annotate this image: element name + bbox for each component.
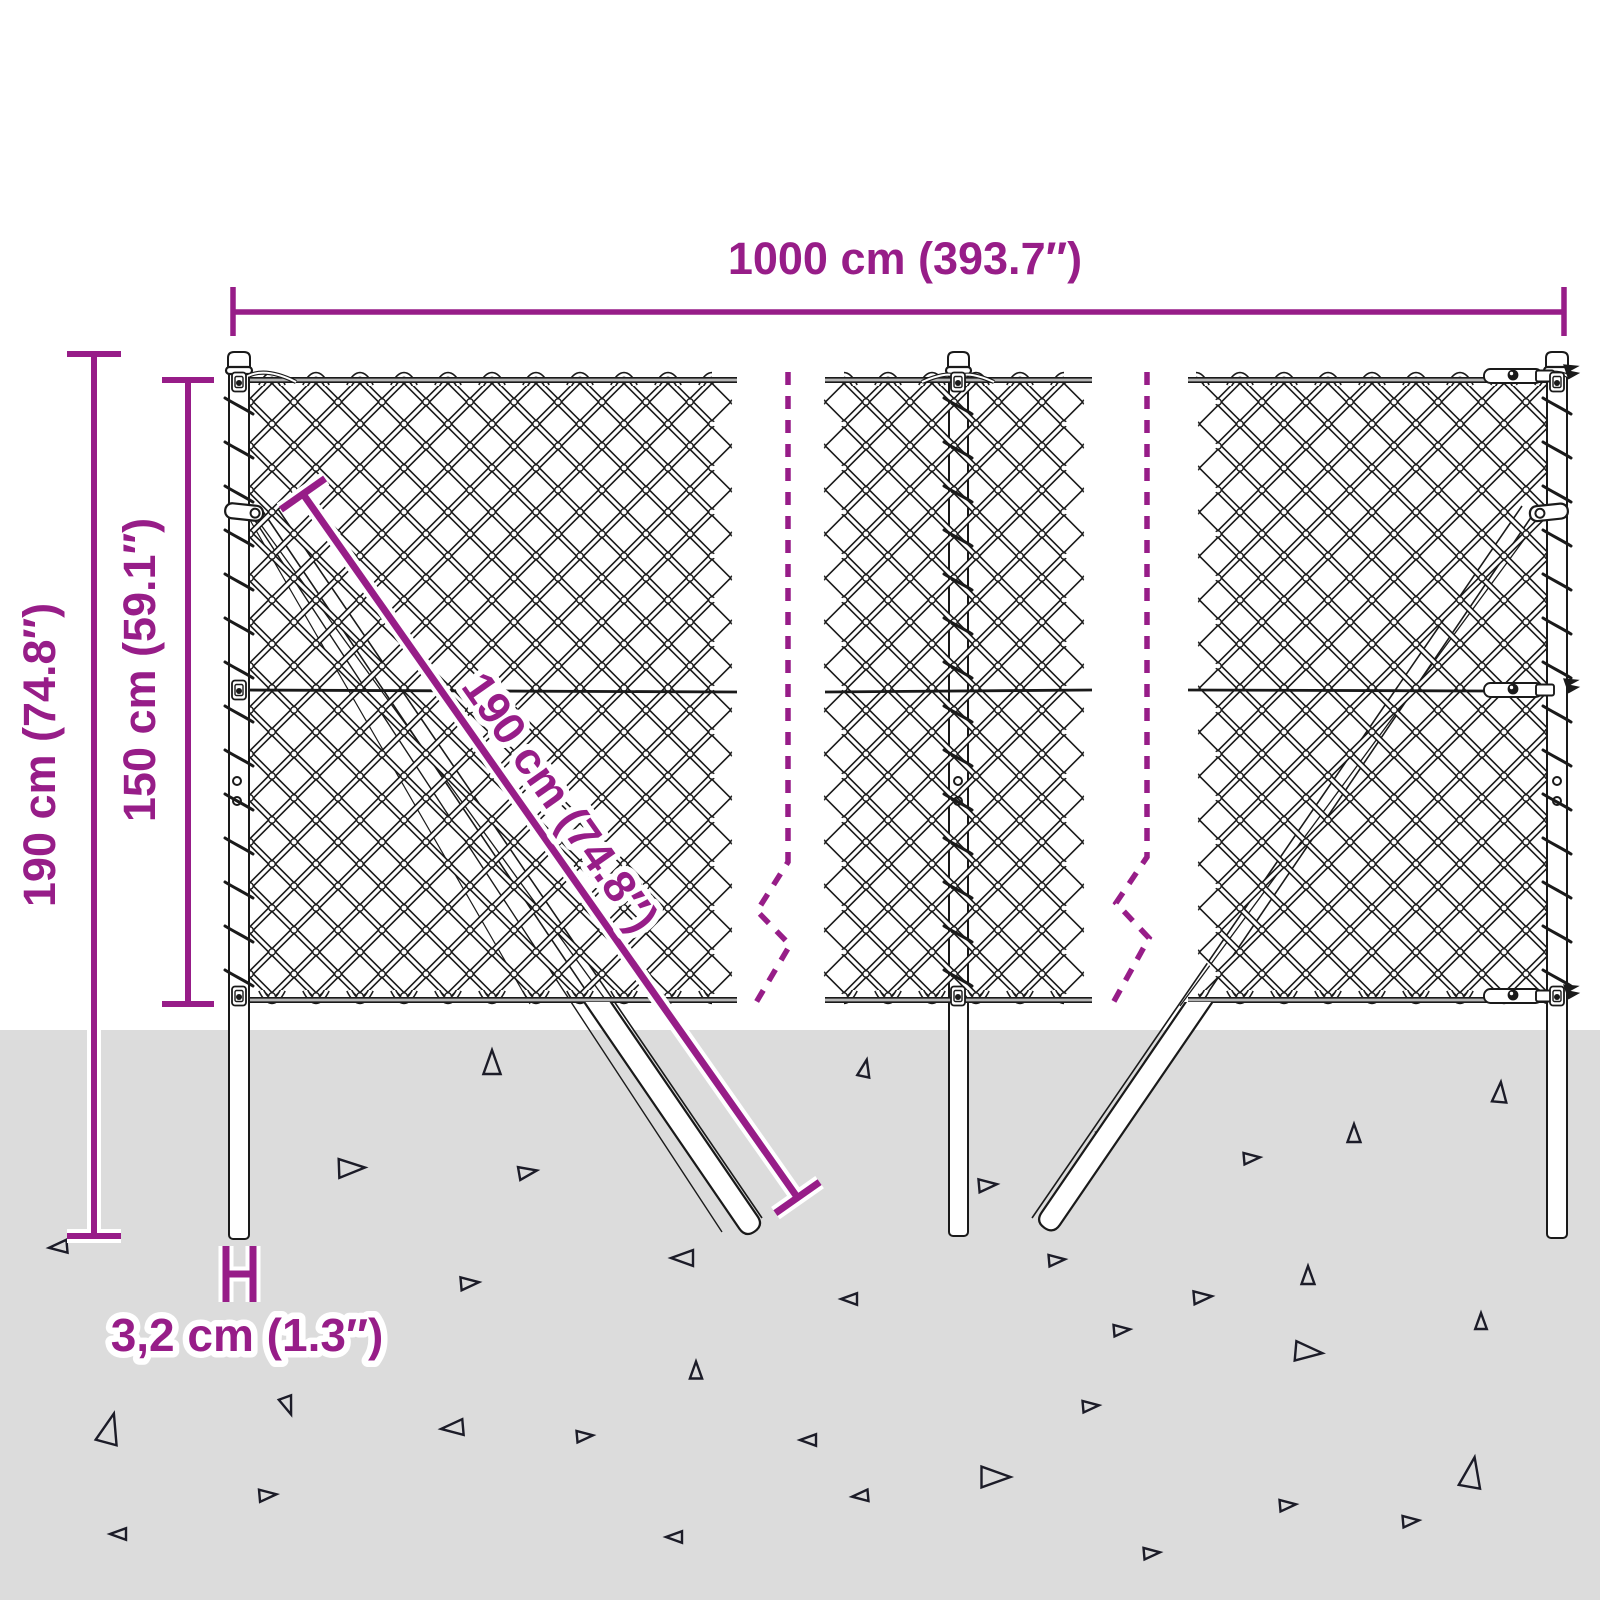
svg-text:3,2 cm (1.3″): 3,2 cm (1.3″): [111, 1309, 384, 1361]
svg-text:190 cm (74.8″): 190 cm (74.8″): [14, 603, 65, 907]
svg-text:1000 cm (393.7″): 1000 cm (393.7″): [728, 233, 1082, 284]
svg-text:150 cm (59.1″): 150 cm (59.1″): [114, 518, 165, 822]
